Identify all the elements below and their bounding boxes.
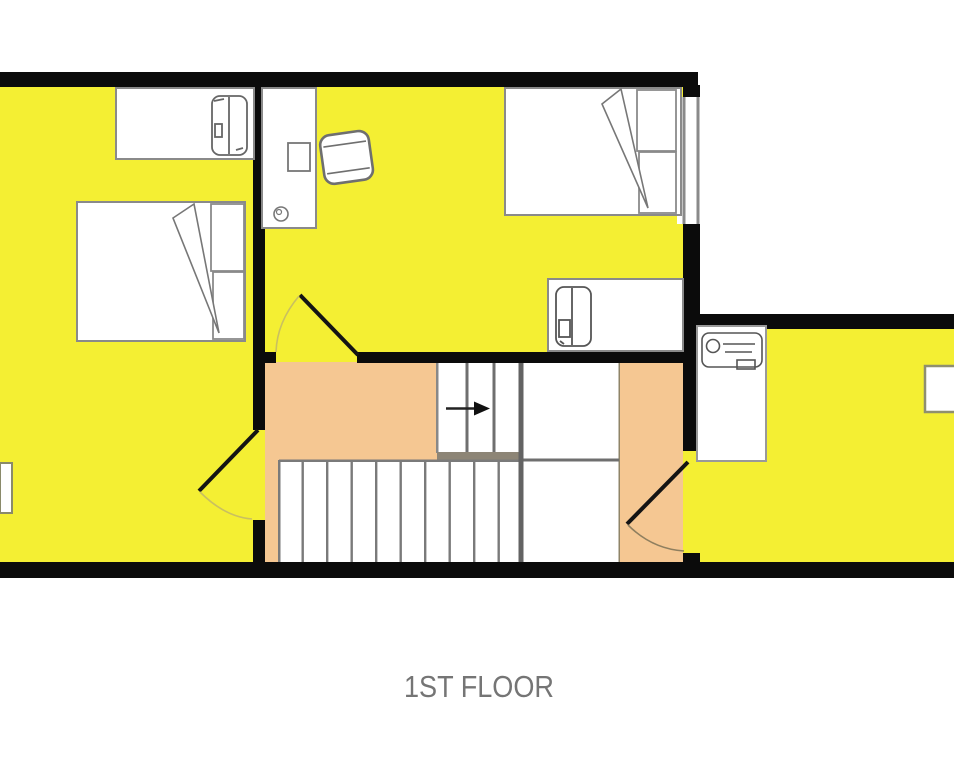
- svg-text:1ST FLOOR: 1ST FLOOR: [404, 669, 554, 704]
